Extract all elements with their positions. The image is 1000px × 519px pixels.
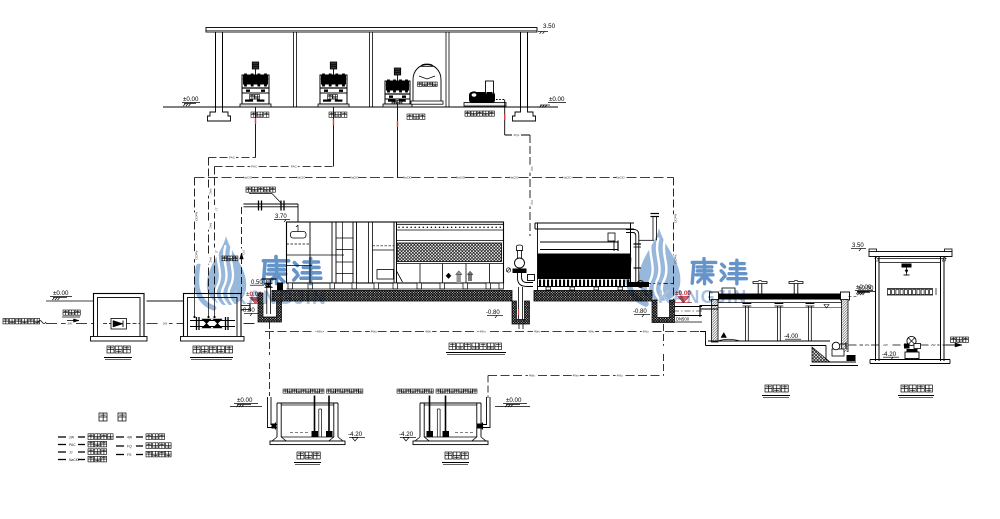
svg-text:±0.00: ±0.00 bbox=[549, 96, 565, 103]
svg-text:JJ: JJ bbox=[69, 450, 73, 454]
svg-text:NaClO: NaClO bbox=[195, 251, 199, 261]
svg-text:JJ: JJ bbox=[215, 208, 219, 212]
svg-text:NaClO: NaClO bbox=[509, 176, 519, 180]
svg-text:KANGJIN: KANGJIN bbox=[658, 287, 747, 307]
svg-text:-4.20: -4.20 bbox=[399, 431, 414, 438]
svg-text:KANGJIN: KANGJIN bbox=[233, 288, 327, 309]
svg-text:FQ: FQ bbox=[530, 200, 534, 205]
svg-text:NaClO: NaClO bbox=[243, 176, 253, 180]
svg-text:-4.20: -4.20 bbox=[348, 431, 363, 438]
svg-text:3.50: 3.50 bbox=[543, 23, 556, 30]
svg-text:2W: 2W bbox=[883, 343, 888, 347]
svg-text:NaClO: NaClO bbox=[456, 176, 466, 180]
svg-text:4Wu: 4Wu bbox=[573, 374, 579, 378]
svg-text:2W: 2W bbox=[163, 322, 168, 326]
svg-text:4Wu: 4Wu bbox=[316, 330, 322, 334]
svg-text:2W: 2W bbox=[865, 343, 870, 347]
svg-text:3.50: 3.50 bbox=[852, 243, 864, 249]
svg-text:2W: 2W bbox=[931, 343, 936, 347]
svg-text:NaClO: NaClO bbox=[616, 176, 626, 180]
svg-text:4Wu: 4Wu bbox=[529, 374, 535, 378]
svg-text:4Wu: 4Wu bbox=[588, 330, 594, 334]
svg-text:4Wu: 4Wu bbox=[617, 374, 623, 378]
svg-text:4Wu: 4Wu bbox=[534, 330, 540, 334]
svg-text:NaClO: NaClO bbox=[403, 176, 413, 180]
svg-text:NaClO: NaClO bbox=[563, 176, 573, 180]
svg-text:4Wu: 4Wu bbox=[479, 330, 485, 334]
svg-text:4Wu: 4Wu bbox=[371, 330, 377, 334]
svg-text:±0.00: ±0.00 bbox=[506, 397, 522, 404]
svg-text:±0.00: ±0.00 bbox=[183, 96, 199, 103]
svg-text:4Wu: 4Wu bbox=[425, 330, 431, 334]
svg-text:3.70: 3.70 bbox=[275, 214, 287, 220]
svg-text:PAC: PAC bbox=[209, 189, 213, 196]
svg-text:±0.00: ±0.00 bbox=[237, 397, 253, 404]
svg-text:FQ: FQ bbox=[127, 444, 132, 448]
svg-text:NaClO: NaClO bbox=[674, 214, 678, 224]
svg-text:NaClO: NaClO bbox=[69, 458, 80, 462]
svg-text:4W: 4W bbox=[127, 435, 133, 439]
svg-text:FQL: FQL bbox=[514, 133, 520, 137]
svg-text:PAC: PAC bbox=[209, 257, 213, 264]
svg-text:±0.00: ±0.00 bbox=[53, 290, 69, 297]
svg-text:NaClO: NaClO bbox=[195, 212, 199, 222]
svg-text:PAC: PAC bbox=[251, 165, 258, 169]
svg-text:FQ: FQ bbox=[530, 167, 534, 172]
svg-text:DN500: DN500 bbox=[676, 317, 690, 322]
svg-text:PAC: PAC bbox=[291, 165, 298, 169]
svg-text:NaClO: NaClO bbox=[296, 176, 306, 180]
svg-text:FS: FS bbox=[127, 453, 132, 457]
svg-text:2W: 2W bbox=[68, 322, 73, 326]
svg-text:PAC: PAC bbox=[209, 223, 213, 230]
svg-text:PAC: PAC bbox=[69, 443, 76, 447]
svg-text:NaClO: NaClO bbox=[350, 176, 360, 180]
svg-text:PAC: PAC bbox=[229, 156, 236, 160]
svg-text:4Wu: 4Wu bbox=[643, 330, 649, 334]
svg-text:2W: 2W bbox=[69, 435, 75, 439]
svg-text:±0.00: ±0.00 bbox=[856, 284, 872, 291]
